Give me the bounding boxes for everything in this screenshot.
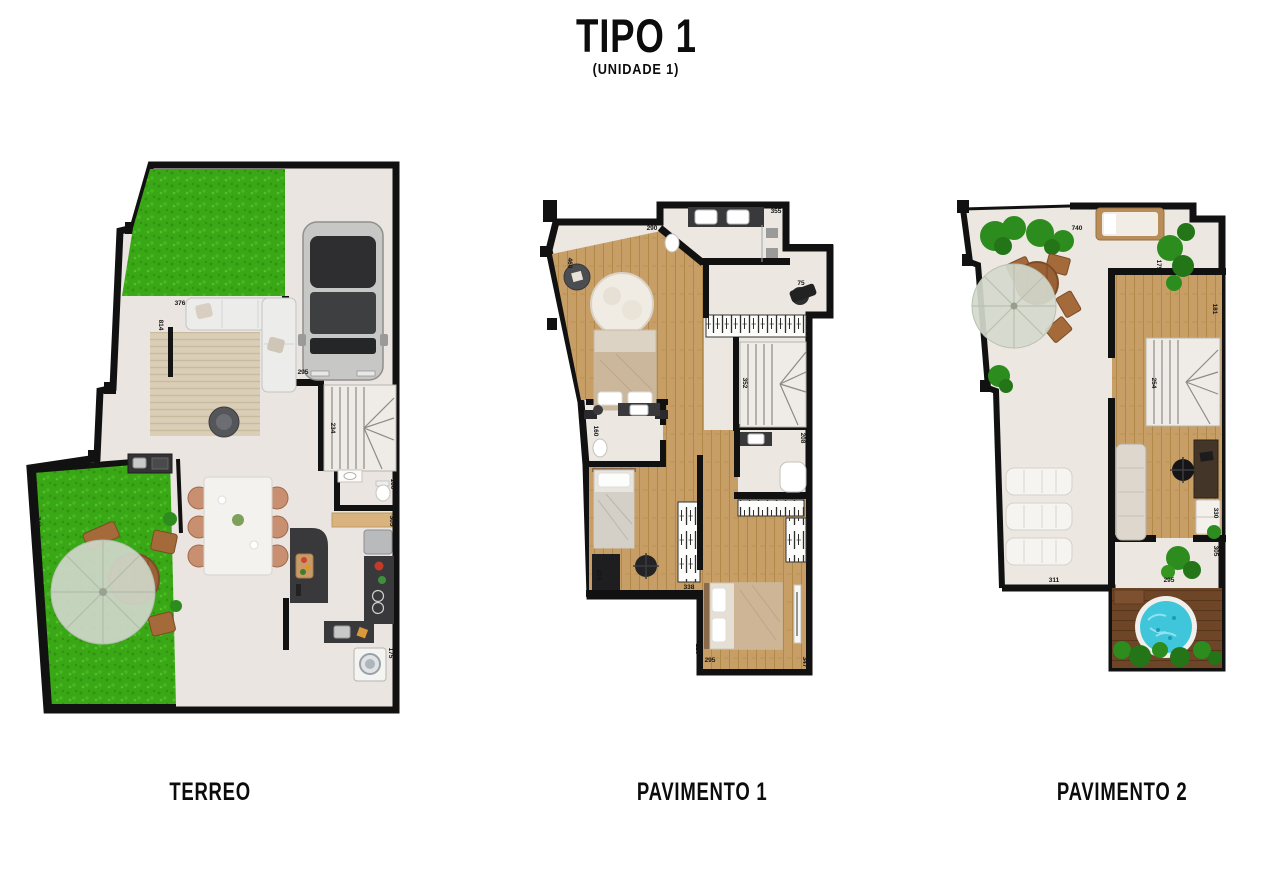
svg-text:208: 208: [799, 433, 806, 444]
bedroom3-closet: [678, 502, 700, 582]
plant-pot: [170, 600, 182, 612]
svg-text:175: 175: [1155, 260, 1162, 271]
svg-text:376: 376: [175, 300, 186, 307]
svg-text:456: 456: [89, 463, 100, 470]
toilet: [376, 485, 390, 501]
svg-text:181: 181: [1211, 304, 1218, 315]
patio-umbrella: [51, 540, 155, 644]
staircase: [740, 342, 806, 427]
sheet-subtitle: (UNIDADE 1): [0, 61, 1272, 78]
desk: [1194, 440, 1218, 498]
sheet-header: TIPO 1 (UNIDADE 1): [0, 12, 1272, 78]
shower-tub: [780, 462, 806, 492]
car: [298, 222, 388, 380]
garden-chair: [150, 530, 178, 555]
pavimento1-floorplan: 29035575460171352160208424338228295347: [540, 195, 890, 715]
bedroom2-closet: [738, 500, 804, 516]
svg-text:347: 347: [801, 657, 808, 668]
svg-text:424: 424: [595, 570, 602, 581]
floor-label-pavimento2: PAVIMENTO 2: [1020, 778, 1225, 807]
toilet: [665, 234, 679, 252]
toilet: [593, 439, 607, 457]
svg-text:740: 740: [34, 517, 41, 528]
front-garden-grass: [122, 169, 285, 296]
floor-label-terreo: TERREO: [130, 778, 290, 807]
svg-text:814: 814: [157, 320, 164, 331]
floorplan-sheet: TIPO 1 (UNIDADE 1): [0, 0, 1272, 870]
svg-text:254: 254: [1150, 378, 1157, 389]
canopy-headboard: [591, 273, 653, 335]
tv-panel: [168, 327, 173, 377]
svg-text:171: 171: [804, 325, 811, 336]
fridge: [364, 530, 392, 554]
svg-text:355: 355: [771, 208, 782, 215]
svg-text:352: 352: [741, 378, 748, 389]
svg-text:295: 295: [705, 657, 716, 664]
svg-text:290: 290: [647, 225, 658, 232]
floor-label-pavimento1: PAVIMENTO 1: [600, 778, 805, 807]
svg-text:228: 228: [694, 644, 701, 655]
svg-text:330: 330: [1212, 508, 1219, 519]
svg-text:305: 305: [388, 516, 395, 527]
sun-loungers: [1006, 468, 1072, 565]
svg-text:160: 160: [389, 479, 396, 490]
svg-text:740: 740: [1072, 225, 1083, 232]
plant-pot: [1207, 525, 1221, 539]
shower-head: [593, 405, 603, 415]
svg-text:460: 460: [566, 258, 573, 269]
patio-umbrella: [972, 264, 1056, 348]
svg-text:160: 160: [592, 426, 599, 437]
master-closet: [706, 315, 806, 337]
breakfast-bar: [332, 513, 392, 527]
jacuzzi-deck: [1112, 588, 1222, 668]
svg-text:175: 175: [387, 648, 394, 659]
svg-text:295: 295: [298, 369, 309, 376]
svg-text:311: 311: [1049, 577, 1060, 584]
svg-text:295: 295: [1164, 577, 1175, 584]
bedroom2-closet: [786, 518, 806, 562]
svg-text:234: 234: [329, 423, 336, 434]
sheet-title: TIPO 1: [0, 12, 1272, 59]
svg-text:338: 338: [684, 584, 695, 591]
svg-text:305: 305: [1212, 546, 1219, 557]
plant-pot: [163, 512, 177, 526]
dining-set: [188, 477, 288, 575]
pavimento2-floorplan: 740175181254311295330305: [955, 195, 1230, 715]
rug: [150, 332, 260, 436]
svg-text:75: 75: [797, 280, 805, 287]
terreo-floorplan: 376814295234160305175456740: [20, 140, 420, 740]
